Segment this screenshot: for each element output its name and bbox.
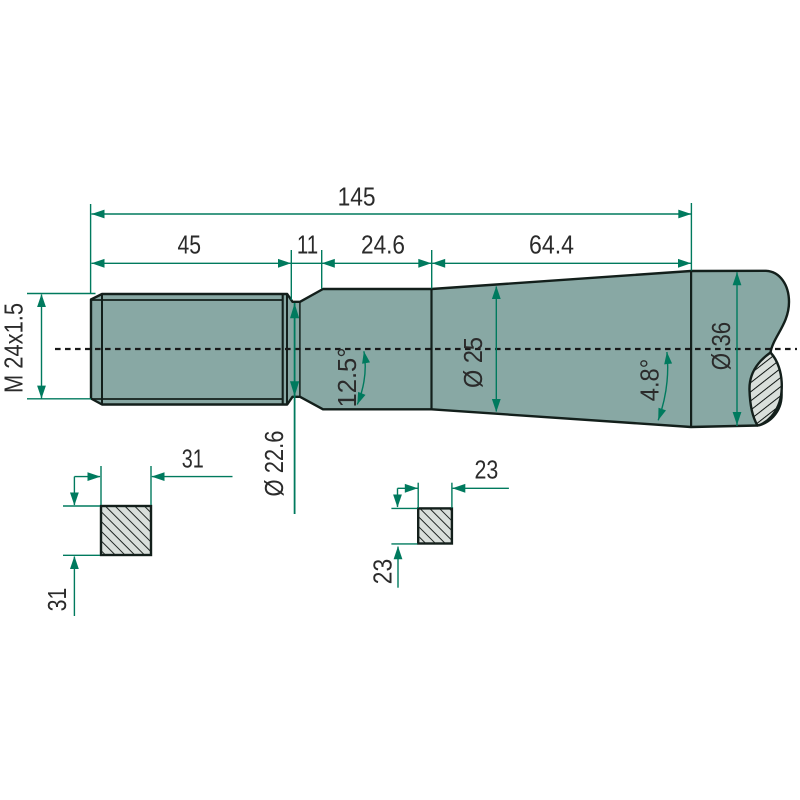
svg-text:Ø 22.6: Ø 22.6: [259, 431, 289, 497]
svg-text:M 24x1.5: M 24x1.5: [0, 303, 28, 393]
svg-text:4.8°: 4.8°: [635, 359, 665, 402]
svg-text:Ø 25: Ø 25: [458, 337, 488, 388]
svg-text:64.4: 64.4: [529, 230, 574, 260]
svg-text:23: 23: [475, 455, 499, 485]
svg-text:12.5°: 12.5°: [332, 348, 362, 408]
svg-text:31: 31: [182, 443, 204, 473]
svg-text:Ø 36: Ø 36: [706, 322, 736, 370]
svg-text:31: 31: [42, 588, 72, 612]
svg-text:24.6: 24.6: [361, 230, 405, 260]
svg-text:11: 11: [297, 230, 318, 260]
svg-text:23: 23: [368, 559, 398, 584]
svg-text:45: 45: [178, 230, 202, 260]
svg-text:145: 145: [338, 182, 376, 212]
